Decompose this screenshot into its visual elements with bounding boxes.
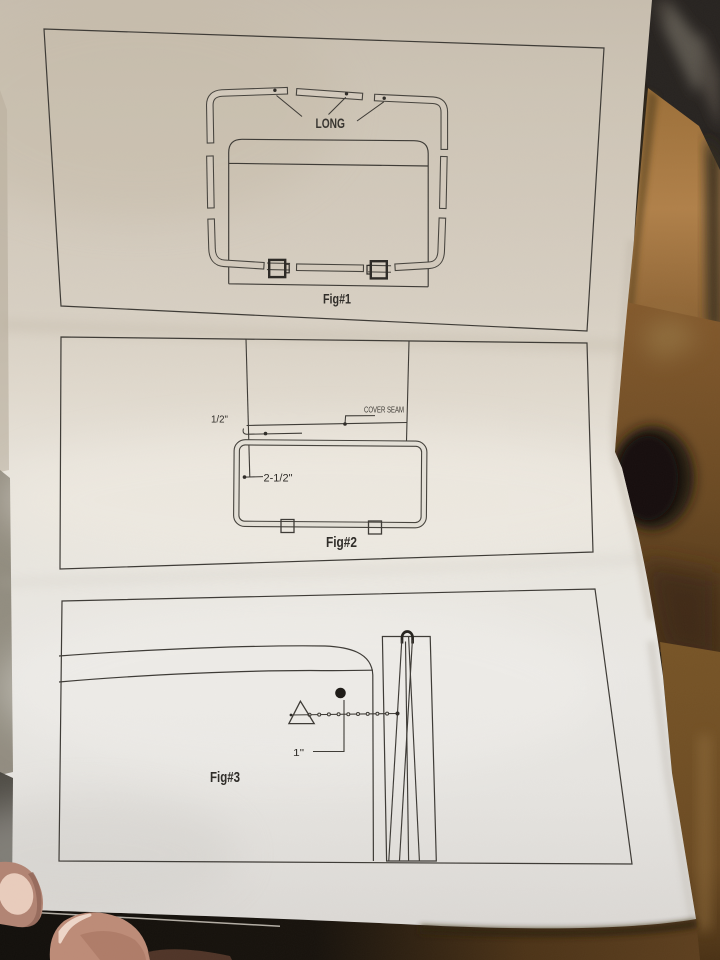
svg-text:1/2": 1/2" — [211, 415, 228, 426]
svg-text:1": 1" — [293, 748, 305, 759]
svg-text:Fig#3: Fig#3 — [210, 770, 240, 786]
svg-text:LONG: LONG — [316, 115, 346, 131]
svg-text:Fig#1: Fig#1 — [323, 292, 351, 307]
svg-text:Fig#2: Fig#2 — [326, 535, 357, 551]
svg-text:COVER SEAM: COVER SEAM — [364, 406, 404, 415]
svg-text:2-1/2": 2-1/2" — [264, 473, 293, 485]
